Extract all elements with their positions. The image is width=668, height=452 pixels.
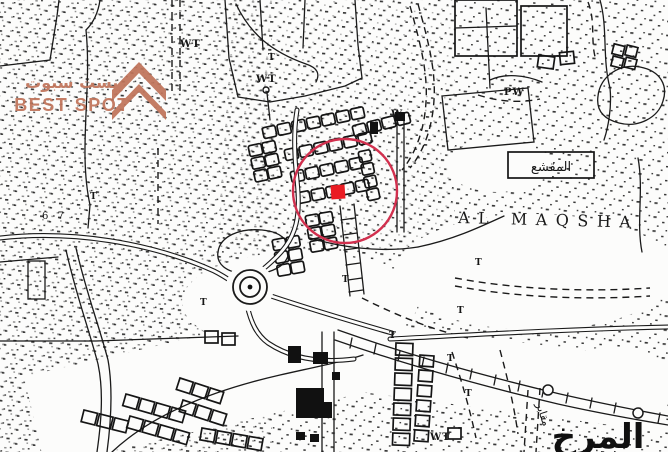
label-wt-1: WT: [179, 39, 201, 50]
svg-text:T: T: [465, 389, 472, 399]
svg-text:T: T: [447, 354, 454, 364]
logo-arabic-text: بيست سبوت: [25, 73, 125, 92]
label-wt-3: WT: [429, 432, 451, 443]
label-pw: PW: [504, 87, 525, 98]
label-spot-height: 6 7: [42, 211, 67, 222]
label-arabic-large: المرخ: [552, 417, 645, 452]
target-marker: [331, 185, 346, 200]
label-w: W: [390, 109, 403, 120]
svg-text:T: T: [389, 331, 396, 341]
svg-text:T: T: [90, 192, 97, 202]
svg-text:T: T: [342, 275, 349, 285]
svg-text:T: T: [200, 298, 207, 308]
label-wt-2: WT: [255, 74, 277, 85]
svg-text:T: T: [268, 53, 275, 63]
svg-text:T: T: [475, 258, 482, 268]
label-arabic-box: المقشع: [531, 160, 571, 175]
roundabout: [226, 263, 274, 311]
svg-text:T: T: [457, 306, 464, 316]
map-image: AL MAQSHA WT WT WT PW W 6 7 المقشع المرخ…: [0, 0, 668, 452]
map-canvas: AL MAQSHA WT WT WT PW W 6 7 المقشع المرخ…: [0, 0, 668, 452]
